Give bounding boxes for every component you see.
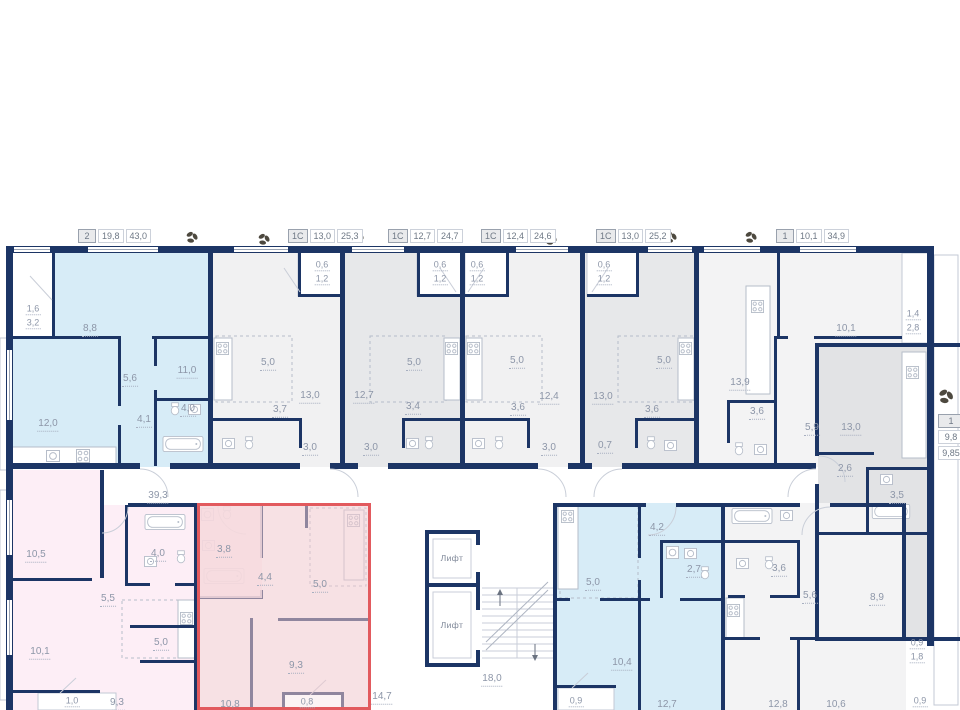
area-label: 13,9 <box>729 378 750 391</box>
area-label: 1,0 <box>65 696 80 707</box>
vent-shaft-icon <box>186 231 199 243</box>
area-label: 10,6 <box>825 700 846 710</box>
area-label: 13,0 <box>592 392 613 405</box>
area-label: 13,0 <box>299 391 320 404</box>
apartment-pink[interactable] <box>8 470 100 710</box>
area-label: 0,7 <box>597 441 613 454</box>
area-label: 3,6 <box>510 403 526 416</box>
area-label: 2,7 <box>686 565 702 578</box>
area-label: 3,4 <box>405 402 421 415</box>
area-label: 1,6 <box>26 304 41 315</box>
unit-label-studio2: 1С 12,7 24,7 <box>388 229 463 243</box>
floorplan-drawing <box>0 0 960 710</box>
unit-label-studio3: 1С 12,4 24,6 <box>481 229 556 243</box>
area-label-lobby: 14,7 <box>371 692 392 705</box>
area-label: 10,1 <box>29 647 50 660</box>
unit-kitchen-area: 12,7 <box>410 229 436 243</box>
area-label: 5,0 <box>260 358 276 371</box>
area-label: 1,4 <box>906 309 921 320</box>
area-label: 10,1 <box>835 324 856 337</box>
unit-type-badge: 1 <box>776 229 794 243</box>
area-label: 12,7 <box>656 700 677 710</box>
area-label: 1,2 <box>315 274 330 285</box>
unit-total-area: 24,7 <box>437 229 463 243</box>
area-label: 5,0 <box>153 638 169 651</box>
balcony <box>587 252 638 296</box>
elevator-label: Лифт <box>440 621 465 631</box>
apartment-selected[interactable] <box>197 503 371 710</box>
unit-total-area: 24,6 <box>530 229 556 243</box>
unit-total-area: 25,2 <box>645 229 671 243</box>
area-label: 3,7 <box>272 405 288 418</box>
area-label: 0,9 <box>910 638 925 649</box>
area-label: 9,3 <box>288 661 304 674</box>
area-label: 1,2 <box>470 274 485 285</box>
area-label: 1,8 <box>910 652 925 663</box>
area-label: 5,6 <box>122 374 138 387</box>
area-label: 0,6 <box>597 260 612 271</box>
area-label: 4,1 <box>136 415 152 428</box>
unit-kitchen-area: 12,4 <box>503 229 529 243</box>
area-label: 3,8 <box>216 545 232 558</box>
area-label: 5,6 <box>802 591 818 604</box>
area-label: 3,0 <box>363 443 379 456</box>
unit-type-badge: 1С <box>388 229 408 243</box>
area-label: 5,0 <box>656 356 672 369</box>
area-label: 2,8 <box>906 323 921 334</box>
area-label: 13,0 <box>840 423 861 436</box>
unit-kitchen-area: 13,0 <box>618 229 644 243</box>
unit-kitchen-area: 10,1 <box>796 229 822 243</box>
area-label: 3,0 <box>302 443 318 456</box>
unit-fills <box>0 250 958 710</box>
unit-type-badge: 1С <box>596 229 616 243</box>
unit-type-badge: 1 <box>938 414 960 428</box>
unit-total-area: 25,3 <box>337 229 363 243</box>
vent-shaft-icon <box>745 231 758 243</box>
area-label: 8,9 <box>869 593 885 606</box>
area-label: 5,9 <box>804 423 820 436</box>
area-label: 5,0 <box>406 358 422 371</box>
area-label: 10,5 <box>25 550 46 563</box>
unit-label-1room: 1 10,1 34,9 <box>776 229 849 243</box>
elevator-label: Лифт <box>440 554 465 564</box>
area-label: 0,6 <box>433 260 448 271</box>
unit-label-studio4: 1С 13,0 25,2 <box>596 229 671 243</box>
area-label: 4,4 <box>257 573 273 586</box>
area-label: 12,7 <box>353 391 374 404</box>
area-label: 12,8 <box>767 700 788 710</box>
staircase <box>482 582 553 661</box>
area-label: 3,6 <box>749 407 765 420</box>
area-label: 12,4 <box>538 392 559 405</box>
unit-type-badge: 2 <box>78 229 96 243</box>
area-label: 0,9 <box>569 696 584 707</box>
area-label: 0,8 <box>300 697 315 708</box>
floorplan: 2 19,8 43,0 1С 13,0 25,3 1С 12,7 24,7 1С… <box>0 0 960 710</box>
area-label: 9,3 <box>109 698 125 710</box>
unit-type-badge: 1С <box>481 229 501 243</box>
area-label: 5,0 <box>509 356 525 369</box>
area-label: 0,6 <box>470 260 485 271</box>
vent-shaft-icon <box>258 233 271 245</box>
area-label: 1,2 <box>597 274 612 285</box>
unit-total-area: 43,0 <box>126 229 152 243</box>
area-label: 4,0 <box>150 549 166 562</box>
area-label: 10,4 <box>611 658 632 671</box>
area-label: 0,6 <box>315 260 330 271</box>
area-label: 11,0 <box>177 366 198 379</box>
unit-type-badge: 1С <box>288 229 308 243</box>
area-label: 5,5 <box>100 594 116 607</box>
unit-kitchen-area: 13,0 <box>310 229 336 243</box>
area-label: 3,6 <box>644 405 660 418</box>
area-label-corridor: 39,3 <box>147 491 168 504</box>
area-label: 5,0 <box>312 580 328 593</box>
area-label: 5,0 <box>585 578 601 591</box>
unit-label-studio1: 1С 13,0 25,3 <box>288 229 363 243</box>
unit-total-area: 9,85 <box>938 446 960 460</box>
area-label: 1,2 <box>433 274 448 285</box>
unit-label-side: 1 9,8 9,85 <box>938 412 960 460</box>
area-label-stairs: 18,0 <box>481 674 502 687</box>
area-label: 0,9 <box>913 696 928 707</box>
area-label: 8,8 <box>82 324 98 337</box>
balcony <box>558 688 614 710</box>
area-label: 2,6 <box>837 464 853 477</box>
area-label: 12,0 <box>37 419 58 432</box>
area-label: 3,2 <box>26 318 41 329</box>
area-label: 3,0 <box>541 443 557 456</box>
area-label: 4,0 <box>180 404 196 417</box>
unit-kitchen-area: 19,8 <box>98 229 124 243</box>
area-label: 4,2 <box>649 523 665 536</box>
area-label: 10,8 <box>219 700 240 710</box>
area-label: 3,5 <box>889 491 905 504</box>
unit-label-2room: 2 19,8 43,0 <box>78 229 151 243</box>
unit-total-area: 34,9 <box>824 229 850 243</box>
area-label: 3,6 <box>771 564 787 577</box>
unit-kitchen-area: 9,8 <box>938 430 960 444</box>
